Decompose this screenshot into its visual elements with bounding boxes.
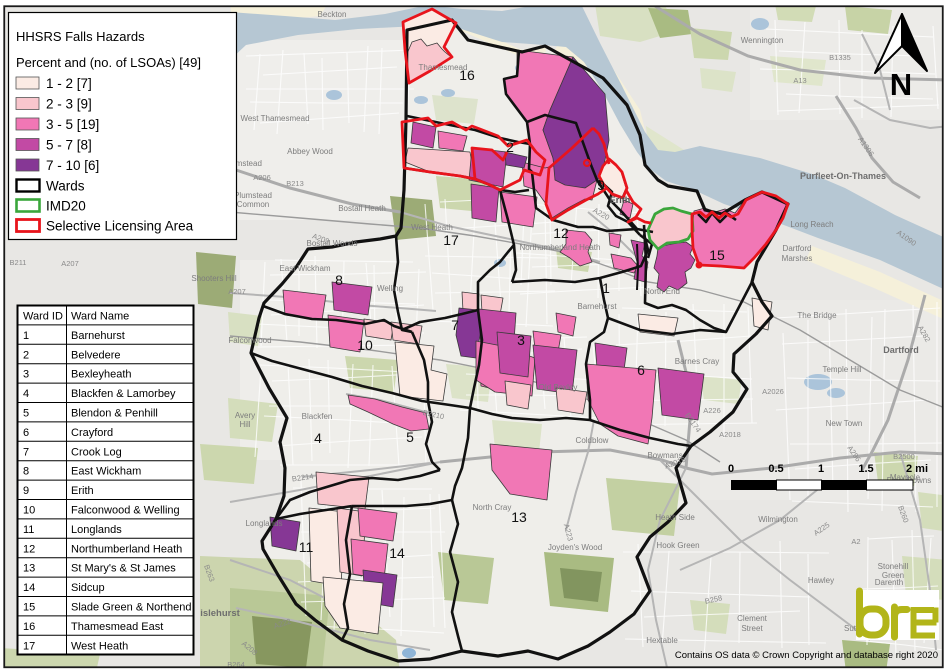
svg-text:13: 13 bbox=[23, 563, 35, 575]
svg-text:A206: A206 bbox=[253, 173, 271, 182]
svg-text:10: 10 bbox=[357, 337, 373, 353]
svg-text:13: 13 bbox=[511, 509, 527, 525]
svg-text:Green: Green bbox=[882, 571, 904, 580]
svg-text:West Thamesmead: West Thamesmead bbox=[240, 114, 309, 123]
svg-text:9: 9 bbox=[597, 177, 605, 193]
svg-text:3 - 5 [19]: 3 - 5 [19] bbox=[46, 117, 99, 132]
svg-text:Dartford: Dartford bbox=[883, 345, 919, 355]
svg-text:St Mary's & St James: St Mary's & St James bbox=[71, 563, 176, 575]
svg-text:Northumberland Heath: Northumberland Heath bbox=[71, 543, 182, 555]
svg-text:Bexleyheath: Bexleyheath bbox=[71, 369, 132, 381]
svg-text:Belvedere: Belvedere bbox=[71, 349, 121, 361]
svg-text:B211: B211 bbox=[10, 258, 27, 267]
svg-text:Hill: Hill bbox=[239, 420, 250, 429]
svg-text:0: 0 bbox=[728, 463, 734, 475]
svg-text:Common: Common bbox=[237, 200, 269, 209]
svg-text:Avery: Avery bbox=[235, 411, 255, 420]
svg-text:Heath Side: Heath Side bbox=[655, 513, 695, 522]
svg-text:N: N bbox=[890, 67, 912, 102]
svg-text:East Wickham: East Wickham bbox=[279, 264, 330, 273]
svg-text:Falconwood: Falconwood bbox=[228, 336, 271, 345]
svg-text:Barnehurst: Barnehurst bbox=[577, 302, 617, 311]
svg-text:3: 3 bbox=[23, 369, 29, 381]
svg-text:Blendon & Penhill: Blendon & Penhill bbox=[71, 408, 158, 420]
svg-text:New Town: New Town bbox=[826, 419, 863, 428]
svg-text:7: 7 bbox=[23, 446, 29, 458]
svg-text:10: 10 bbox=[23, 505, 35, 517]
svg-text:Crayford: Crayford bbox=[71, 427, 113, 439]
svg-text:Erith: Erith bbox=[71, 485, 94, 497]
svg-text:1.5: 1.5 bbox=[858, 463, 873, 475]
svg-text:Longlands: Longlands bbox=[71, 524, 122, 536]
svg-text:16: 16 bbox=[23, 621, 35, 633]
svg-text:15: 15 bbox=[23, 602, 35, 614]
svg-text:Longlands: Longlands bbox=[246, 519, 283, 528]
svg-text:A207: A207 bbox=[61, 259, 79, 268]
svg-text:North End: North End bbox=[644, 287, 680, 296]
svg-text:The Bridge: The Bridge bbox=[797, 311, 837, 320]
svg-text:17: 17 bbox=[23, 640, 35, 652]
svg-text:Street: Street bbox=[741, 624, 763, 633]
svg-text:Marshes: Marshes bbox=[782, 254, 813, 263]
svg-text:B1335: B1335 bbox=[829, 53, 851, 62]
svg-text:Hawley: Hawley bbox=[808, 576, 834, 585]
svg-text:B260: B260 bbox=[896, 504, 910, 524]
svg-text:North Cray: North Cray bbox=[473, 503, 512, 512]
svg-text:5: 5 bbox=[406, 429, 414, 445]
svg-text:Selective Licensing Area: Selective Licensing Area bbox=[46, 219, 194, 234]
svg-text:Shooters Hill: Shooters Hill bbox=[191, 274, 237, 283]
svg-text:Hook Green: Hook Green bbox=[656, 541, 699, 550]
svg-text:Clement: Clement bbox=[737, 614, 768, 623]
svg-text:West Heath: West Heath bbox=[71, 640, 128, 652]
svg-text:Plumstead: Plumstead bbox=[234, 191, 272, 200]
svg-text:Thamesmead East: Thamesmead East bbox=[71, 621, 163, 633]
svg-text:A1306: A1306 bbox=[856, 135, 876, 158]
svg-text:Northumberland Heath: Northumberland Heath bbox=[520, 243, 601, 252]
svg-text:Joyden's Wood: Joyden's Wood bbox=[548, 543, 602, 552]
svg-text:East Wickham: East Wickham bbox=[71, 466, 141, 478]
svg-text:1 - 2 [7]: 1 - 2 [7] bbox=[46, 76, 92, 91]
svg-text:Slade Green & Northend: Slade Green & Northend bbox=[71, 602, 191, 614]
svg-text:5 - 7 [8]: 5 - 7 [8] bbox=[46, 138, 92, 153]
svg-text:A225: A225 bbox=[812, 520, 832, 537]
svg-text:1: 1 bbox=[818, 463, 824, 475]
svg-text:9: 9 bbox=[23, 485, 29, 497]
svg-text:Wilmington: Wilmington bbox=[758, 515, 798, 524]
svg-text:4: 4 bbox=[314, 430, 322, 446]
svg-text:islehurst: islehurst bbox=[200, 608, 240, 619]
svg-text:Blackfen & Lamorbey: Blackfen & Lamorbey bbox=[71, 388, 176, 400]
svg-text:A2018: A2018 bbox=[719, 430, 741, 439]
svg-text:11: 11 bbox=[299, 539, 314, 555]
svg-text:6: 6 bbox=[637, 362, 645, 378]
svg-text:Blackfen: Blackfen bbox=[302, 412, 333, 421]
svg-text:Barnehurst: Barnehurst bbox=[71, 330, 125, 342]
svg-text:1: 1 bbox=[23, 330, 29, 342]
svg-text:IMD20: IMD20 bbox=[46, 199, 86, 214]
svg-text:Sut: Sut bbox=[844, 624, 857, 633]
svg-text:Contains OS data © Crown Copyr: Contains OS data © Crown Copyright and d… bbox=[675, 650, 938, 661]
svg-text:Ward ID: Ward ID bbox=[23, 311, 63, 323]
svg-text:B213: B213 bbox=[286, 179, 304, 188]
svg-text:A226: A226 bbox=[703, 406, 721, 415]
svg-text:14: 14 bbox=[23, 582, 35, 594]
svg-text:Bostall Heath: Bostall Heath bbox=[338, 204, 386, 213]
svg-text:Percent and (no. of LSOAs) [49: Percent and (no. of LSOAs) [49] bbox=[16, 55, 201, 70]
svg-text:Purfleet-On-Thames: Purfleet-On-Thames bbox=[800, 171, 886, 181]
svg-text:2: 2 bbox=[506, 139, 514, 155]
svg-text:Welling: Welling bbox=[377, 284, 403, 293]
svg-text:5: 5 bbox=[23, 408, 29, 420]
svg-text:Old Bexley: Old Bexley bbox=[539, 383, 578, 392]
svg-text:Sidcup: Sidcup bbox=[71, 582, 105, 594]
svg-text:17: 17 bbox=[443, 232, 459, 248]
svg-text:Ward Name: Ward Name bbox=[71, 311, 129, 323]
svg-text:Falconwood & Welling: Falconwood & Welling bbox=[71, 505, 180, 517]
svg-text:12: 12 bbox=[553, 225, 569, 241]
svg-text:Crook Log: Crook Log bbox=[71, 446, 122, 458]
svg-text:B2500: B2500 bbox=[893, 452, 915, 461]
svg-text:3: 3 bbox=[517, 332, 525, 348]
svg-text:Temple Hill: Temple Hill bbox=[822, 365, 861, 374]
svg-text:A207: A207 bbox=[228, 287, 246, 296]
svg-text:Abbey Wood: Abbey Wood bbox=[287, 147, 333, 156]
svg-text:Thamesmead: Thamesmead bbox=[419, 63, 468, 72]
svg-text:7: 7 bbox=[451, 317, 459, 333]
svg-text:7 - 10 [6]: 7 - 10 [6] bbox=[46, 158, 99, 173]
svg-text:11: 11 bbox=[23, 524, 34, 536]
svg-text:A2: A2 bbox=[851, 537, 860, 546]
svg-text:Wennington: Wennington bbox=[741, 36, 784, 45]
svg-text:14: 14 bbox=[389, 545, 405, 561]
svg-text:12: 12 bbox=[23, 543, 35, 555]
svg-text:15: 15 bbox=[709, 247, 725, 263]
svg-text:2: 2 bbox=[23, 349, 29, 361]
svg-text:1: 1 bbox=[602, 280, 610, 296]
svg-text:A13: A13 bbox=[793, 76, 806, 85]
svg-text:0.5: 0.5 bbox=[768, 463, 783, 475]
svg-text:Beckton: Beckton bbox=[318, 10, 347, 19]
svg-text:Stonehill: Stonehill bbox=[878, 562, 909, 571]
svg-text:2 mi: 2 mi bbox=[906, 463, 928, 475]
svg-text:Barnes Cray: Barnes Cray bbox=[675, 357, 719, 366]
svg-text:Erith: Erith bbox=[610, 195, 631, 205]
svg-text:4: 4 bbox=[23, 388, 29, 400]
svg-text:8: 8 bbox=[23, 466, 29, 478]
svg-text:2 - 3 [9]: 2 - 3 [9] bbox=[46, 97, 92, 112]
svg-text:Dartford: Dartford bbox=[783, 244, 812, 253]
svg-text:A2026: A2026 bbox=[762, 387, 784, 396]
svg-text:HHSRS Falls Hazards: HHSRS Falls Hazards bbox=[16, 29, 145, 44]
svg-text:Hextable: Hextable bbox=[646, 636, 678, 645]
svg-text:6: 6 bbox=[23, 427, 29, 439]
svg-text:8: 8 bbox=[335, 272, 343, 288]
svg-text:West Heath: West Heath bbox=[411, 223, 453, 232]
svg-text:Long Reach: Long Reach bbox=[790, 220, 833, 229]
svg-text:Coldblow: Coldblow bbox=[576, 436, 609, 445]
svg-text:Wards: Wards bbox=[46, 179, 85, 194]
